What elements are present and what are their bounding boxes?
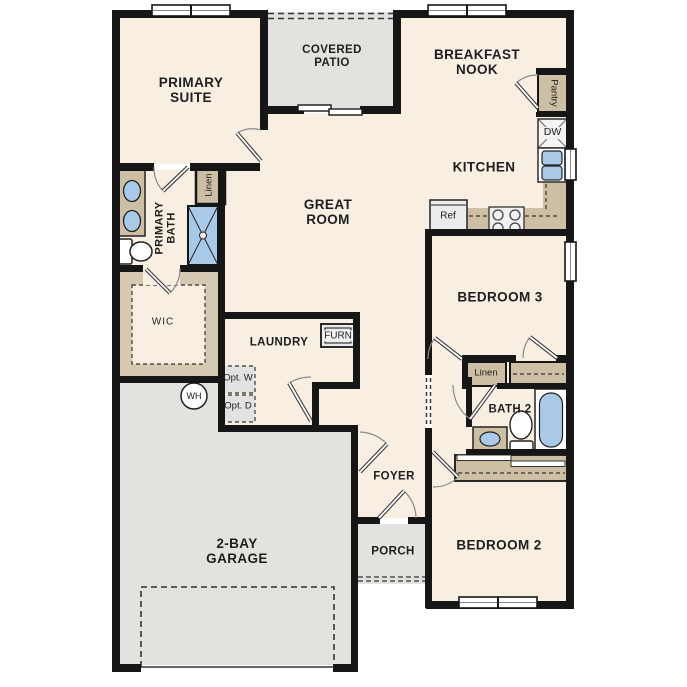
appliance-label-water-heater: WH (187, 391, 202, 401)
bath2-toilet (510, 411, 533, 451)
window-kitchen (565, 149, 576, 180)
room-label-great-room: GREAT ROOM (293, 197, 363, 228)
appliance-label-refrigerator: Ref (440, 210, 456, 221)
floor-garage-left (119, 383, 225, 665)
floor-plan-drawing (0, 0, 687, 687)
window-bedroom3 (565, 242, 576, 281)
bath2-sink (473, 427, 507, 452)
primary-shower (188, 206, 218, 265)
room-label-bedroom2: BEDROOM 2 (456, 537, 541, 552)
room-label-porch: PORCH (371, 546, 415, 559)
closet-label-linen-primary: Linen (205, 173, 216, 196)
bedroom2-closet-door-panel (457, 455, 511, 461)
bedroom2-closet-door-panel (511, 461, 565, 467)
window-breakfast-nook (428, 5, 506, 16)
window-primary-suite (152, 5, 230, 16)
room-label-bedroom3: BEDROOM 3 (457, 289, 542, 304)
sink-primary-1 (124, 181, 141, 202)
room-label-garage: 2-BAY GARAGE (191, 536, 283, 567)
sink-primary-2 (124, 211, 141, 232)
floorplan-screenshot: PRIMARY SUITE COVERED PATIO BREAKFAST NO… (0, 0, 687, 687)
room-label-covered-patio: COVERED PATIO (292, 44, 372, 70)
room-label-breakfast-nook: BREAKFAST NOOK (421, 47, 533, 78)
appliance-label-opt-dryer: Opt. D (223, 402, 253, 413)
appliance-label-furnace: FURN (323, 330, 353, 341)
toilet-primary-bowl (130, 242, 152, 261)
hall-archway-dashes (427, 378, 431, 426)
room-label-kitchen: KITCHEN (453, 159, 516, 174)
kitchen-sink (538, 148, 567, 182)
closet-label-pantry: Pantry (547, 79, 558, 106)
room-label-primary-bath: PRIMARY BATH (154, 191, 179, 265)
room-label-laundry: LAUNDRY (250, 337, 309, 350)
bath2-tub (535, 389, 567, 451)
appliance-label-dishwasher: DW (543, 127, 563, 139)
room-label-bath2: BATH 2 (487, 404, 533, 417)
window-bedroom2 (459, 597, 537, 608)
room-label-foyer: FOYER (373, 471, 415, 484)
closet-label-linen-hall: Linen (474, 369, 497, 380)
appliance-label-opt-washer: Opt. W (223, 374, 253, 385)
room-label-wic: WIC (152, 316, 174, 327)
room-label-primary-suite: PRIMARY SUITE (141, 75, 241, 106)
